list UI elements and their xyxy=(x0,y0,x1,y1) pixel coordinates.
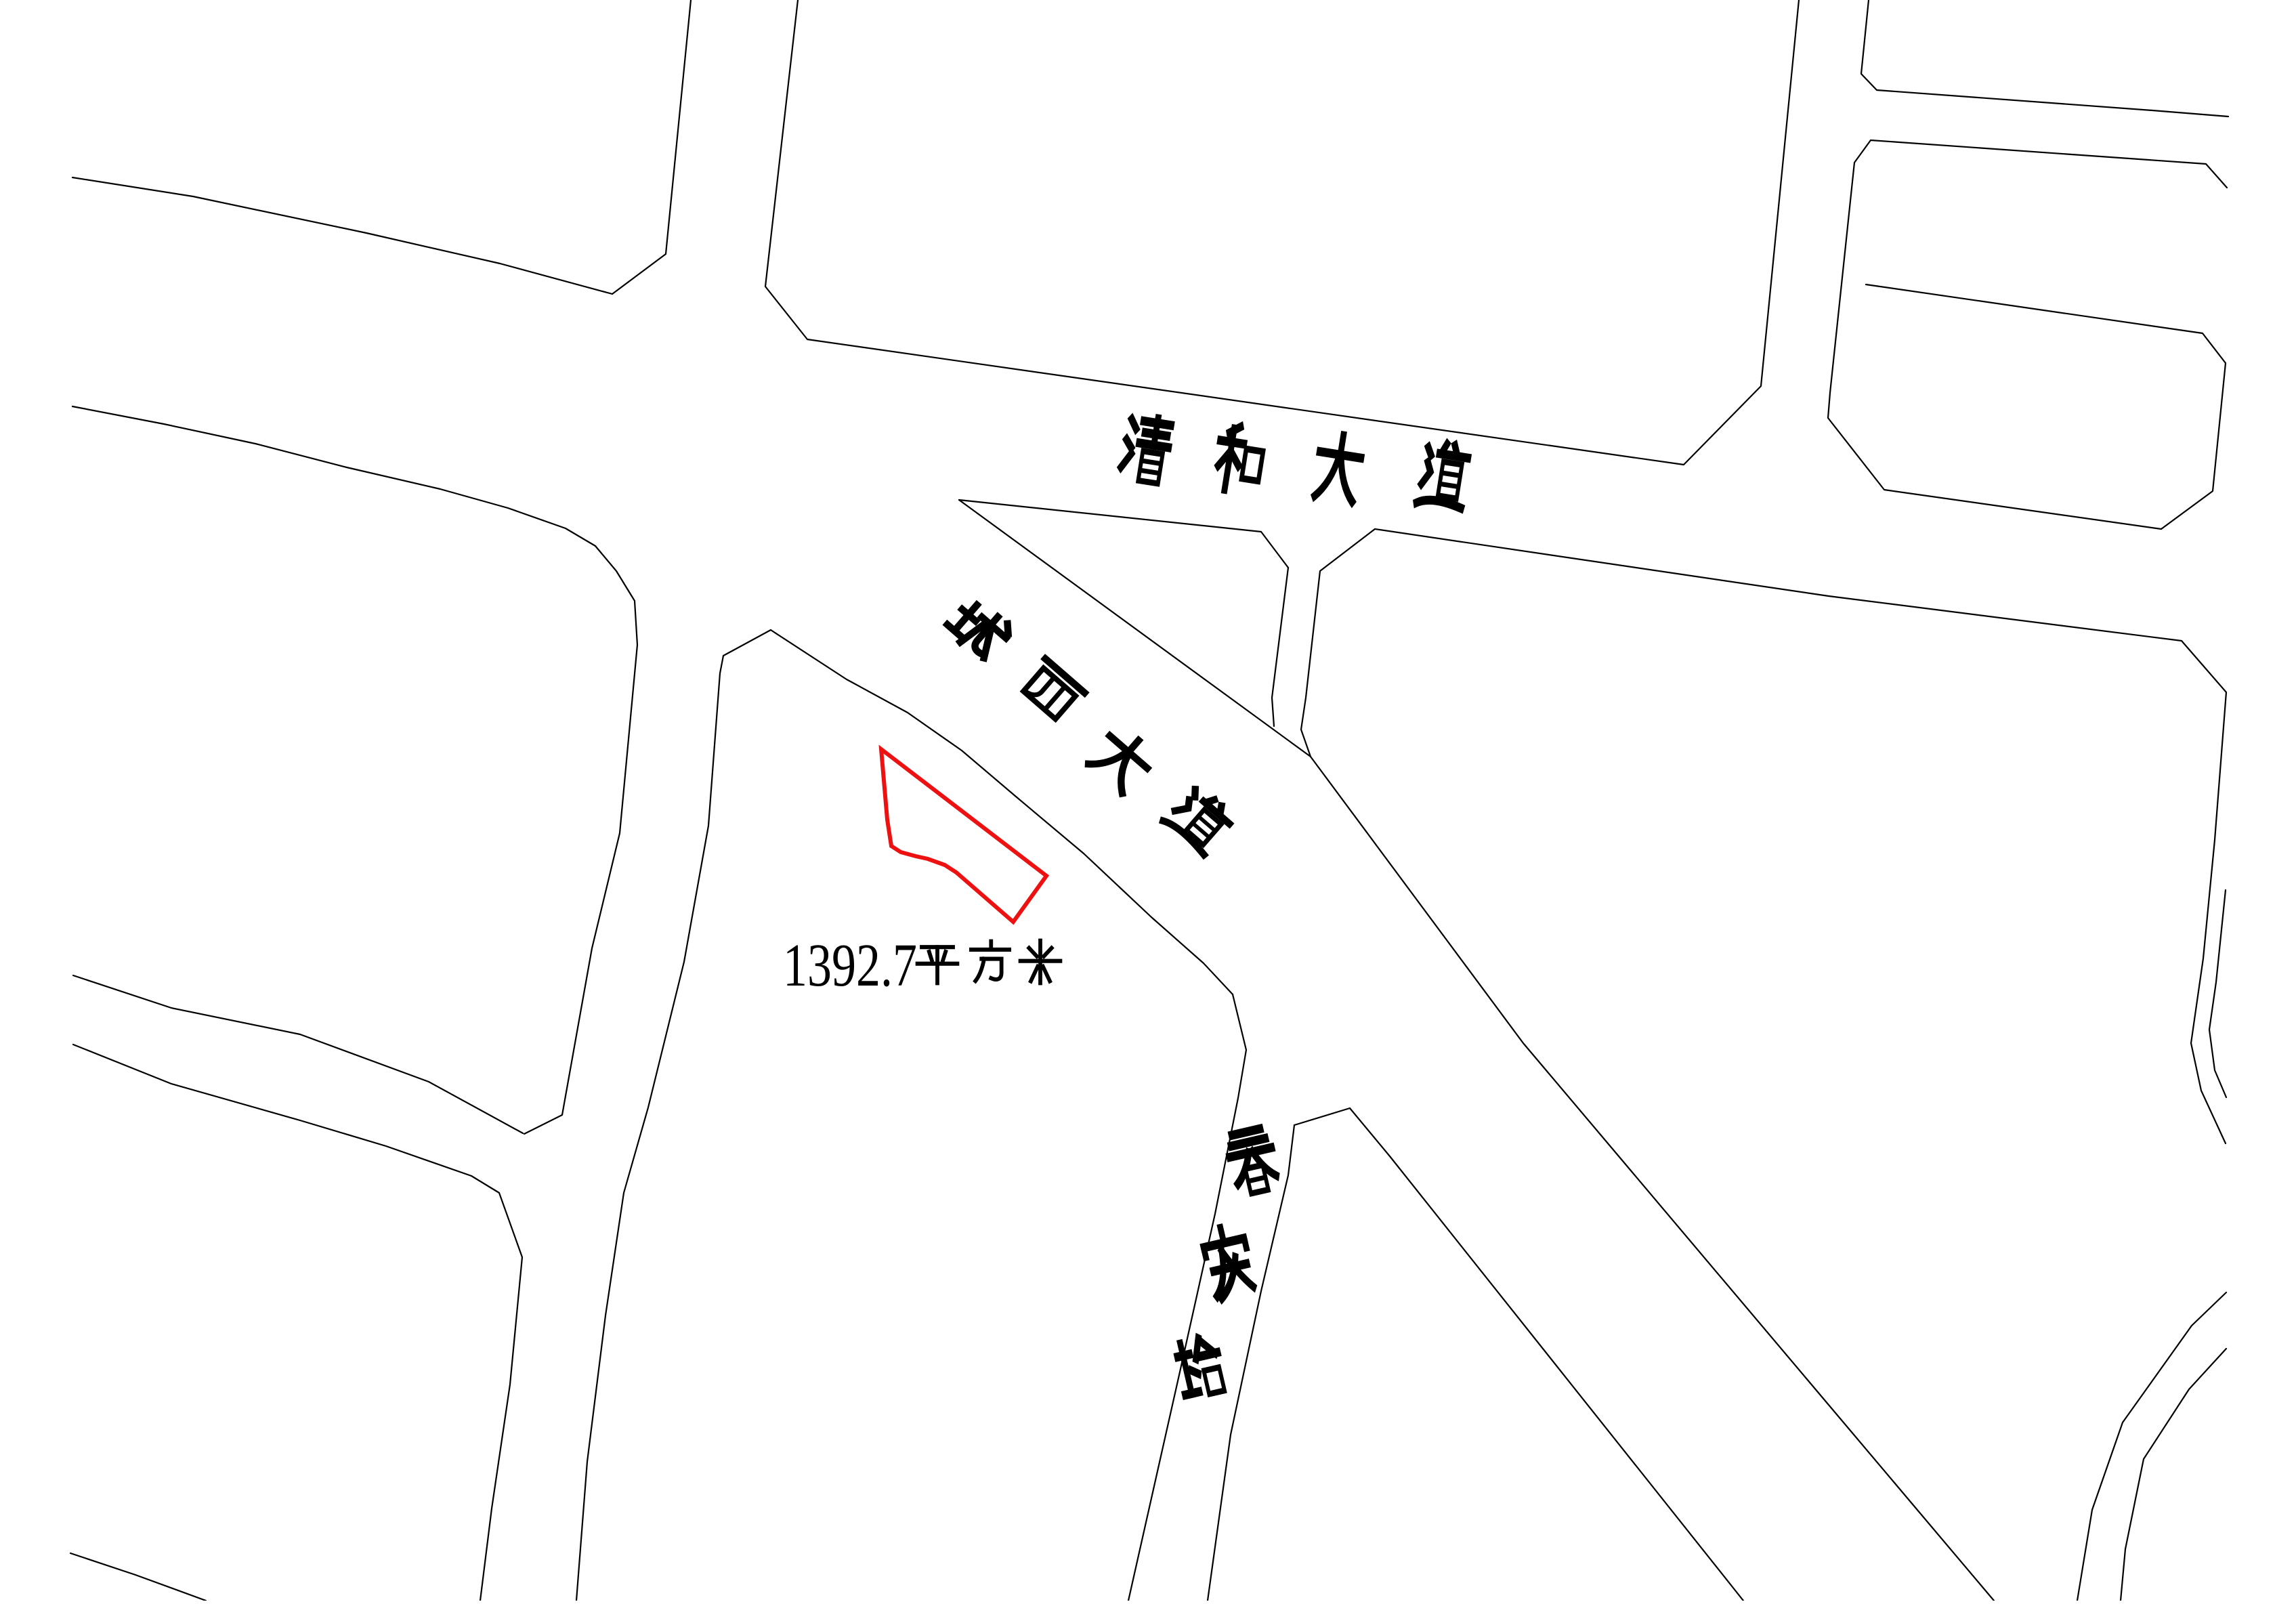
svg-text:1392.7: 1392.7 xyxy=(783,932,917,999)
